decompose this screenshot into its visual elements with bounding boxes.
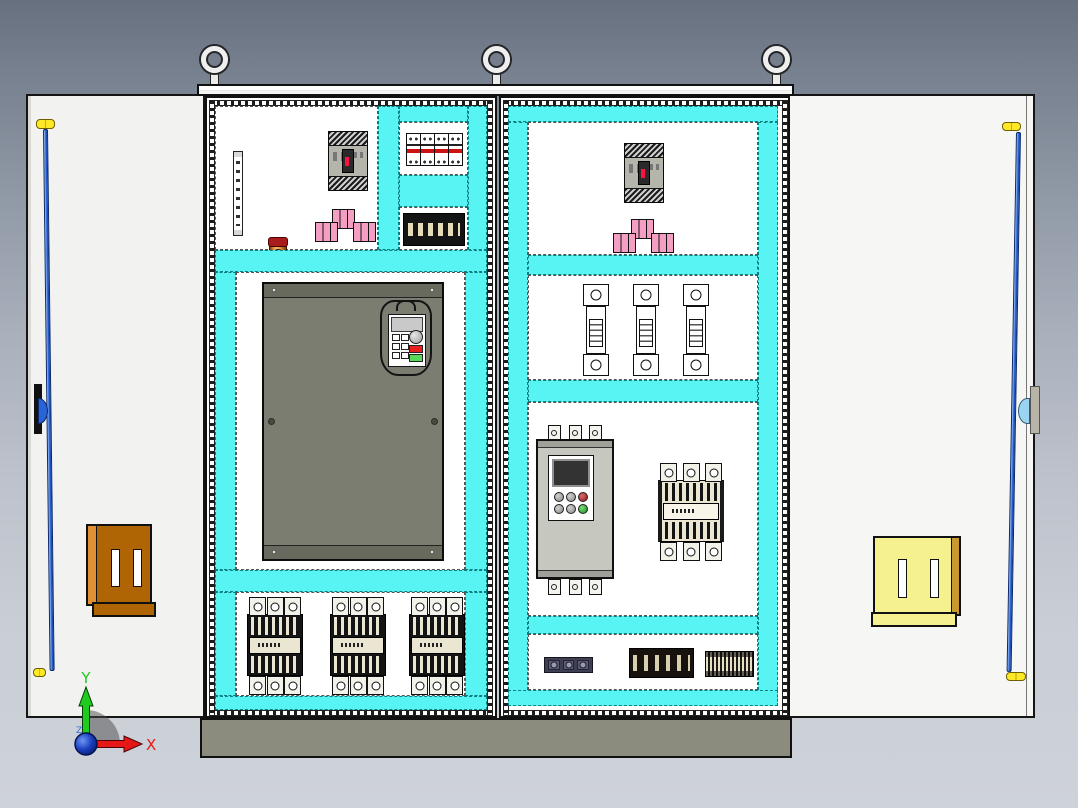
fuse-panel[interactable] [528, 275, 758, 380]
wiring-duct[interactable] [399, 106, 468, 122]
contactor-body [658, 480, 724, 542]
pink-wire-labels[interactable] [613, 233, 636, 253]
right-rod-top-cap [1002, 122, 1021, 131]
starter-button [566, 504, 576, 514]
pink-wire-labels[interactable] [651, 233, 674, 253]
terminal-tab [267, 676, 284, 695]
contactor-label [411, 637, 463, 654]
terminal-tab [284, 597, 301, 616]
breaker-terminals [329, 176, 367, 190]
terminal-tab [429, 597, 446, 616]
busbar-end [268, 237, 288, 247]
contactor-body [330, 614, 386, 676]
vent-slots [413, 656, 461, 674]
right-rod-bottom-cap [1006, 672, 1026, 681]
wiring-duct[interactable] [215, 570, 487, 592]
molded-case-breaker[interactable] [328, 131, 368, 191]
pocket-lip [92, 602, 156, 617]
starter-button [554, 492, 564, 502]
wiring-duct[interactable] [378, 106, 399, 250]
pocket-slot [898, 559, 907, 598]
vfd-button [392, 343, 400, 350]
wiring-duct[interactable] [465, 272, 487, 570]
starter-keypad[interactable] [548, 455, 594, 521]
terminal-tab [683, 463, 700, 482]
terminal-tab [569, 579, 582, 595]
terminal-tab [429, 676, 446, 695]
contactor[interactable] [409, 597, 465, 693]
vfd-knob [409, 330, 423, 344]
fuse-lug [633, 284, 659, 306]
fuse-body [686, 306, 706, 355]
vfd-button [401, 352, 409, 359]
orientation-triad: Y X Z [38, 670, 158, 766]
wiring-duct[interactable] [215, 696, 487, 710]
right-door[interactable] [786, 94, 1035, 718]
pocket-spine [951, 538, 959, 614]
vfd-top-bar [264, 284, 442, 298]
terminal-tab [660, 463, 677, 482]
starter-button [554, 504, 564, 514]
vent-slots [251, 617, 299, 635]
pocket-slot [133, 549, 142, 587]
vfd-panel[interactable] [236, 272, 465, 570]
breaker-terminals [625, 144, 663, 158]
terminal-tab [284, 676, 301, 695]
contactor-label [332, 637, 384, 654]
breaker-body [329, 146, 367, 176]
x-axis-label: X [146, 736, 156, 754]
contactor[interactable] [247, 597, 303, 693]
breaker-toggle [638, 161, 650, 185]
vfd-keypad[interactable] [388, 314, 426, 367]
starter-tabs [536, 579, 614, 593]
right-door-locking-rod[interactable] [1007, 132, 1021, 672]
pocket-lip [871, 612, 957, 627]
starter-display [552, 459, 590, 487]
mini-breaker-panel[interactable] [399, 122, 468, 175]
lifting-eye-bolt[interactable] [483, 46, 510, 73]
fuse-body [636, 306, 656, 355]
contactor[interactable] [330, 597, 386, 693]
cabinet-top-cap[interactable] [197, 84, 794, 96]
molded-case-breaker[interactable] [624, 143, 664, 203]
relay-cell [548, 660, 560, 670]
document-pocket-yellow[interactable] [873, 536, 961, 616]
vfd-button [392, 352, 400, 359]
terminal-tab [332, 676, 349, 695]
terminal-block-strip[interactable] [403, 213, 465, 246]
fuse-body [586, 306, 606, 355]
left-door-locking-rod[interactable] [43, 129, 55, 671]
pocket-spine [88, 526, 97, 604]
starter-tabs [536, 425, 614, 439]
y-axis-label: Y [80, 670, 91, 687]
terminal-tab [332, 597, 349, 616]
mini-breaker [435, 134, 449, 165]
contactor-label [663, 503, 719, 520]
fuse-holder[interactable] [634, 284, 658, 376]
starter-stop-button [578, 492, 588, 502]
mini-breaker [407, 134, 421, 165]
mini-breaker [421, 134, 435, 165]
terminal-tab [705, 542, 722, 561]
incoming-panel[interactable] [528, 122, 758, 255]
relay-terminal-row[interactable] [544, 657, 593, 673]
contactor-tabs [247, 597, 303, 614]
wiring-duct[interactable] [508, 106, 778, 122]
terminal-tab [249, 676, 266, 695]
contactor-tabs [409, 597, 465, 614]
vfd-button [401, 334, 409, 341]
vent-slots [413, 617, 461, 635]
mini-breaker-row[interactable] [406, 133, 463, 166]
vfd-run-button [409, 354, 423, 362]
terminal-tab [589, 579, 602, 595]
lifting-eye-bolt[interactable] [201, 46, 228, 73]
wiring-duct[interactable] [528, 255, 758, 275]
frame-perforation [782, 100, 788, 716]
contactor-tabs [247, 676, 303, 693]
wiring-duct[interactable] [215, 272, 236, 570]
relay-cell [577, 660, 589, 670]
right-rod-bend [1018, 398, 1030, 424]
contactor-tabs [330, 597, 386, 614]
terminal-tab [705, 463, 722, 482]
terminal-tab [411, 676, 428, 695]
terminal-panel[interactable] [399, 207, 468, 250]
wiring-duct[interactable] [508, 690, 778, 706]
frame-perforation [487, 100, 493, 716]
terminal-tab [350, 676, 367, 695]
fuse-lug [683, 284, 709, 306]
terminal-tab [249, 597, 266, 616]
left-rod-top-cap [36, 119, 55, 129]
contactor[interactable] [658, 463, 724, 559]
terminal-tab [683, 542, 700, 561]
pink-wire-labels[interactable] [315, 222, 338, 242]
vfd-button [401, 343, 409, 350]
vent-slots [334, 617, 382, 635]
terminal-tab [267, 597, 284, 616]
z-axis-sphere [75, 733, 97, 755]
vfd-screw [431, 418, 438, 425]
fuse-lug [583, 284, 609, 306]
terminal-tab [660, 542, 677, 561]
left-cabinet[interactable] [205, 96, 497, 718]
cad-viewport[interactable]: Y X Z [0, 0, 1078, 808]
pink-wire-labels[interactable] [353, 222, 376, 242]
fuse-holder[interactable] [584, 284, 608, 376]
contactor-body [247, 614, 303, 676]
pocket-slot [111, 549, 120, 587]
vfd-bottom-bar [264, 545, 442, 559]
starter-body [536, 439, 614, 579]
relay-cell [563, 660, 575, 670]
terminal-tab [446, 676, 463, 695]
vfd-stop-button [409, 345, 423, 353]
contactor-tabs [409, 676, 465, 693]
terminal-block-strip[interactable] [629, 648, 694, 678]
soft-starter-panel[interactable] [528, 402, 758, 616]
fuse-lug [583, 354, 609, 376]
vent-slots [665, 522, 717, 540]
incoming-panel[interactable] [215, 106, 378, 250]
document-pocket-brown[interactable] [86, 524, 152, 606]
terminal-tab [367, 676, 384, 695]
wiring-duct[interactable] [215, 592, 236, 696]
left-door[interactable] [26, 94, 205, 718]
vent-slots [665, 483, 717, 501]
terminal-tab [446, 597, 463, 616]
pocket-slot [930, 559, 939, 598]
breaker-terminals [625, 188, 663, 202]
frame-perforation [209, 710, 489, 716]
breaker-terminals [329, 132, 367, 146]
contactor-body [409, 614, 465, 676]
right-cabinet[interactable] [499, 96, 790, 718]
frame-perforation [503, 710, 786, 716]
terminal-tab [367, 597, 384, 616]
fuse-lug [633, 354, 659, 376]
lifting-eye-bolt[interactable] [763, 46, 790, 73]
starter-button [566, 492, 576, 502]
contactor-tabs [658, 542, 724, 559]
terminal-strip[interactable] [233, 151, 243, 236]
wiring-duct[interactable] [215, 250, 487, 272]
din-terminal-row[interactable] [705, 651, 754, 677]
terminal-tab [548, 579, 561, 595]
contactor-panel[interactable] [236, 592, 465, 696]
breaker-toggle [342, 149, 354, 173]
starter-run-button [578, 504, 588, 514]
fuse-holder[interactable] [684, 284, 708, 376]
terminal-tab [350, 597, 367, 616]
breaker-body [625, 158, 663, 188]
wiring-duct[interactable] [508, 122, 528, 700]
mini-breaker [449, 134, 462, 165]
vent-slots [251, 656, 299, 674]
contactor-tabs [330, 676, 386, 693]
terminal-panel[interactable] [528, 634, 758, 690]
vfd-button [392, 334, 400, 341]
vfd-screw [268, 418, 275, 425]
right-rod-handle-bracket [1030, 386, 1040, 434]
wiring-duct[interactable] [528, 616, 758, 634]
wiring-duct[interactable] [758, 122, 778, 700]
fuse-lug [683, 354, 709, 376]
variable-frequency-drive[interactable] [262, 282, 444, 561]
soft-starter[interactable] [536, 425, 614, 593]
wiring-duct[interactable] [468, 106, 487, 250]
base-plinth[interactable] [200, 718, 792, 758]
wiring-duct[interactable] [399, 175, 468, 207]
terminal-tab [411, 597, 428, 616]
vent-slots [334, 656, 382, 674]
wiring-duct[interactable] [528, 380, 758, 402]
wiring-duct[interactable] [465, 592, 487, 696]
contactor-label [249, 637, 301, 654]
contactor-tabs [658, 463, 724, 480]
z-axis-label: Z [76, 726, 82, 736]
